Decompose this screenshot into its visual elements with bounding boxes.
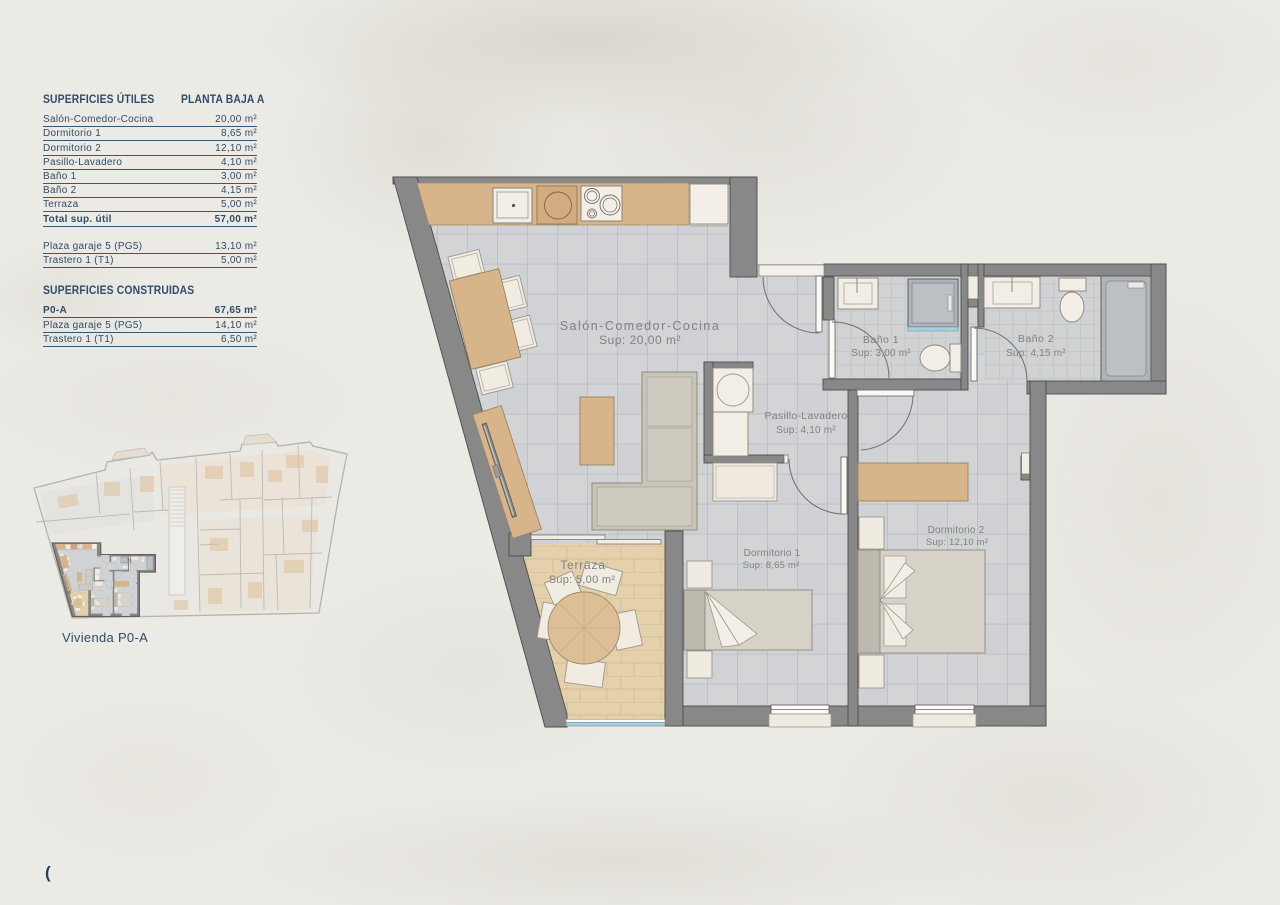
svg-text:Salón-Comedor-Cocina: Salón-Comedor-Cocina bbox=[560, 319, 721, 333]
svg-text:Sup: 4,15 m²: Sup: 4,15 m² bbox=[1006, 348, 1066, 359]
svg-text:Terraza: Terraza bbox=[560, 558, 606, 572]
svg-text:Sup: 3,00 m²: Sup: 3,00 m² bbox=[851, 348, 911, 359]
svg-text:Baño 2: Baño 2 bbox=[1018, 333, 1054, 345]
svg-text:Pasillo-Lavadero: Pasillo-Lavadero bbox=[764, 410, 847, 422]
svg-text:Sup: 4,10 m²: Sup: 4,10 m² bbox=[776, 425, 836, 436]
svg-text:Sup: 8,65 m²: Sup: 8,65 m² bbox=[743, 560, 800, 571]
svg-text:Dormitorio 2: Dormitorio 2 bbox=[928, 525, 985, 536]
svg-text:Dormitorio 1: Dormitorio 1 bbox=[744, 548, 801, 559]
svg-text:Sup: 5,00 m²: Sup: 5,00 m² bbox=[549, 574, 616, 586]
svg-text:Baño 1: Baño 1 bbox=[863, 334, 899, 346]
svg-text:Sup: 20,00 m²: Sup: 20,00 m² bbox=[599, 333, 681, 347]
svg-text:Sup: 12,10 m²: Sup: 12,10 m² bbox=[926, 537, 988, 548]
